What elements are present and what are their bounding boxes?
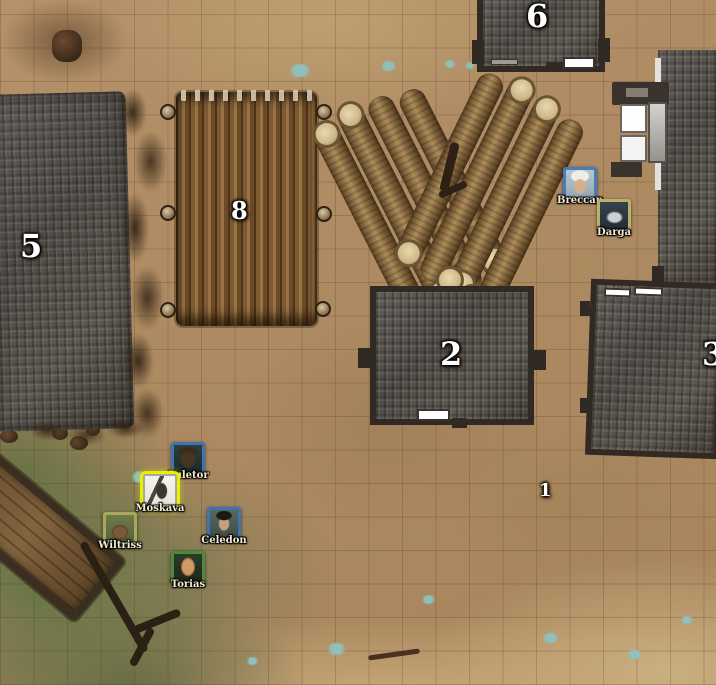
building-6-door bbox=[563, 57, 595, 69]
token-suletor[interactable]: Suletor bbox=[171, 442, 205, 476]
palisade-knob bbox=[160, 104, 176, 120]
marker-2: 2 bbox=[440, 338, 462, 370]
debris-row bbox=[28, 412, 158, 454]
water-patch bbox=[326, 643, 347, 655]
building-3-door bbox=[604, 288, 631, 298]
marker-8: 8 bbox=[231, 199, 248, 223]
token-portrait bbox=[566, 170, 594, 198]
water-patch bbox=[246, 657, 259, 665]
token-label: Torias bbox=[171, 580, 205, 590]
palisade-pole-tips bbox=[178, 90, 315, 101]
token-label: Wiltriss bbox=[98, 541, 142, 551]
token-celedon[interactable]: Celedon bbox=[207, 507, 241, 541]
frame-tab bbox=[472, 40, 484, 64]
token-darga[interactable]: Darga bbox=[597, 199, 631, 233]
water-patch bbox=[680, 616, 694, 624]
frame-tab bbox=[546, 62, 563, 72]
token-label: Darga bbox=[597, 228, 631, 238]
token-wiltriss[interactable]: Wiltriss bbox=[103, 512, 137, 546]
palisade-knob bbox=[160, 302, 176, 318]
token-portrait bbox=[600, 202, 628, 230]
palisade-knob bbox=[316, 206, 332, 222]
frame-tab bbox=[532, 350, 546, 370]
frame-tab bbox=[580, 301, 590, 316]
debris-rock bbox=[52, 30, 82, 62]
building-3-door bbox=[634, 286, 663, 296]
water-patch bbox=[380, 61, 397, 71]
water-patch bbox=[541, 633, 560, 643]
frame-tab bbox=[452, 418, 467, 428]
water-patch bbox=[288, 64, 312, 77]
marker-6: 6 bbox=[526, 0, 548, 32]
frame-tab bbox=[598, 38, 610, 62]
token-portrait bbox=[145, 476, 175, 506]
token-label: Celedon bbox=[201, 536, 246, 546]
token-portrait bbox=[210, 510, 238, 538]
marker-5: 5 bbox=[20, 230, 42, 262]
token-portrait bbox=[106, 515, 134, 543]
token-moskava-selected[interactable]: Moskava bbox=[143, 474, 177, 508]
marker-3: 3 bbox=[702, 338, 716, 370]
frame-tab bbox=[580, 398, 590, 413]
building-2-door bbox=[417, 409, 450, 421]
building-3-roof bbox=[585, 279, 716, 460]
token-portrait bbox=[174, 445, 202, 473]
water-patch bbox=[444, 60, 456, 68]
cart-grey-panel bbox=[648, 102, 667, 163]
marker-1: 1 bbox=[539, 482, 552, 500]
battle-map[interactable]: 1 2 3 5 6 8 Breccan Darga Suletor Moskav… bbox=[0, 0, 716, 685]
token-portrait bbox=[174, 554, 202, 582]
building-6-step bbox=[491, 59, 518, 65]
token-torias[interactable]: Torias bbox=[171, 551, 205, 585]
debris-barrel bbox=[0, 430, 18, 443]
water-patch bbox=[421, 595, 436, 604]
frame-tab bbox=[358, 348, 371, 368]
cart-white-panel bbox=[620, 104, 647, 133]
token-label: Moskava bbox=[135, 504, 184, 514]
palisade-knob bbox=[160, 205, 176, 221]
cart-frame-notch bbox=[626, 88, 648, 97]
cart-white-panel bbox=[620, 135, 647, 162]
scrub-shadow bbox=[116, 88, 172, 438]
palisade-knob bbox=[315, 301, 331, 317]
water-patch bbox=[626, 650, 643, 659]
cart-frame-bottom bbox=[611, 162, 642, 177]
token-breccan[interactable]: Breccan bbox=[563, 167, 597, 201]
